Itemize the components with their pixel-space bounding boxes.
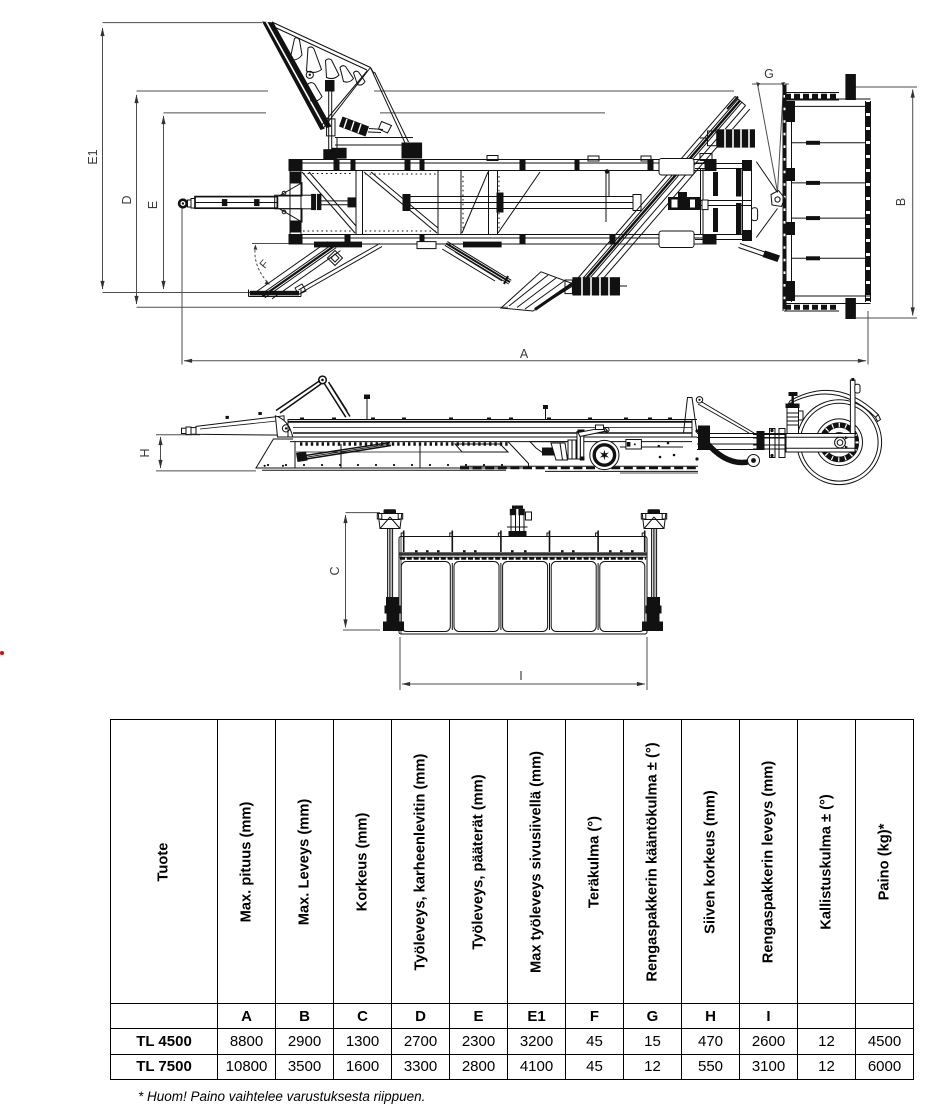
svg-text:D: D bbox=[120, 195, 134, 204]
svg-text:F: F bbox=[258, 258, 272, 271]
svg-text:H: H bbox=[138, 448, 152, 457]
svg-text:G: G bbox=[764, 67, 774, 81]
svg-text:B: B bbox=[894, 198, 908, 206]
svg-text:E: E bbox=[146, 201, 160, 209]
svg-text:A: A bbox=[520, 347, 529, 361]
svg-text:C: C bbox=[328, 566, 342, 575]
svg-text:E1: E1 bbox=[86, 149, 100, 164]
svg-text:I: I bbox=[519, 669, 522, 683]
